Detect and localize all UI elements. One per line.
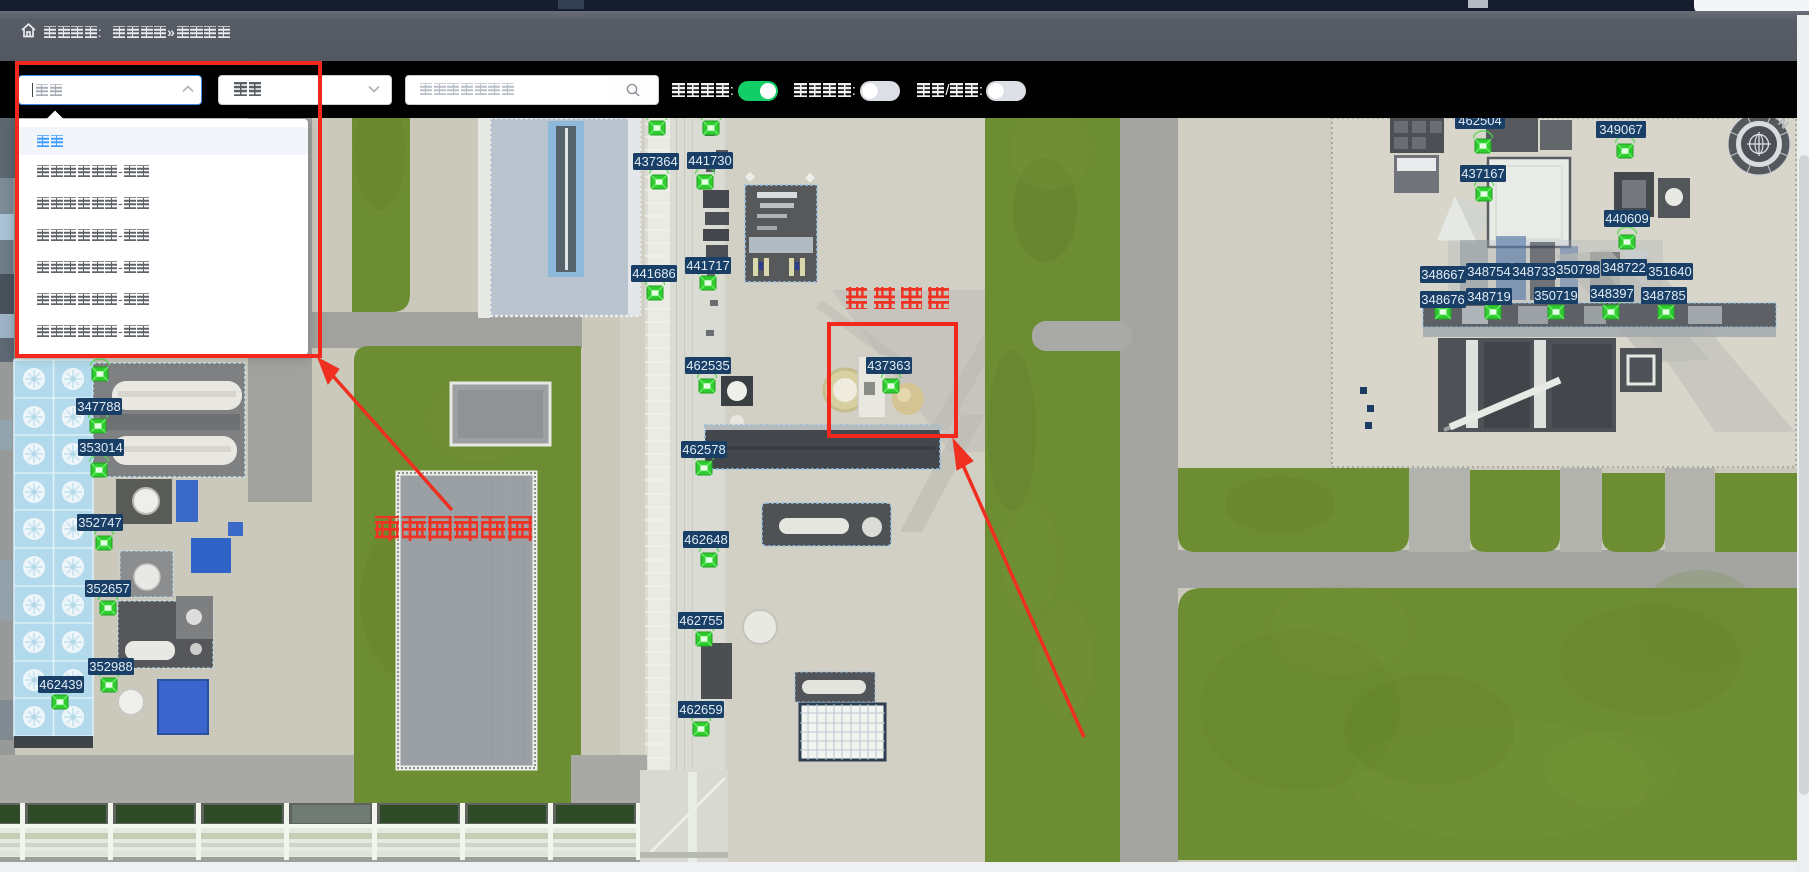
svg-text:348722: 348722 [1602, 260, 1645, 275]
svg-text:348667: 348667 [1421, 267, 1464, 282]
svg-text:351640: 351640 [1648, 264, 1691, 279]
svg-text:348719: 348719 [1467, 289, 1510, 304]
svg-text:353014: 353014 [79, 440, 122, 455]
svg-text:462504: 462504 [1458, 118, 1501, 128]
svg-text:441730: 441730 [688, 153, 731, 168]
svg-text:348676: 348676 [1421, 292, 1464, 307]
svg-text:352747: 352747 [78, 515, 121, 530]
svg-text:347788: 347788 [77, 399, 120, 414]
svg-text:462535: 462535 [686, 358, 729, 373]
svg-text:462648: 462648 [684, 532, 727, 547]
svg-text:462755: 462755 [679, 613, 722, 628]
svg-text:441686: 441686 [632, 266, 675, 281]
svg-text:440609: 440609 [1605, 211, 1648, 226]
svg-text:348754: 348754 [1467, 264, 1510, 279]
svg-text:462659: 462659 [679, 702, 722, 717]
svg-text:437364: 437364 [634, 154, 677, 169]
svg-text:437167: 437167 [1461, 166, 1504, 181]
svg-text:462578: 462578 [682, 442, 725, 457]
svg-text:462439: 462439 [39, 677, 82, 692]
svg-text:350798: 350798 [1556, 262, 1599, 277]
svg-text:348397: 348397 [1590, 286, 1633, 301]
svg-text:437363: 437363 [867, 358, 910, 373]
svg-text:352988: 352988 [89, 659, 132, 674]
svg-text:352657: 352657 [86, 581, 129, 596]
svg-text:349067: 349067 [1599, 122, 1642, 137]
svg-text:441717: 441717 [686, 258, 729, 273]
svg-text:350719: 350719 [1534, 288, 1577, 303]
svg-text:348785: 348785 [1642, 288, 1685, 303]
svg-text:348733: 348733 [1512, 264, 1555, 279]
